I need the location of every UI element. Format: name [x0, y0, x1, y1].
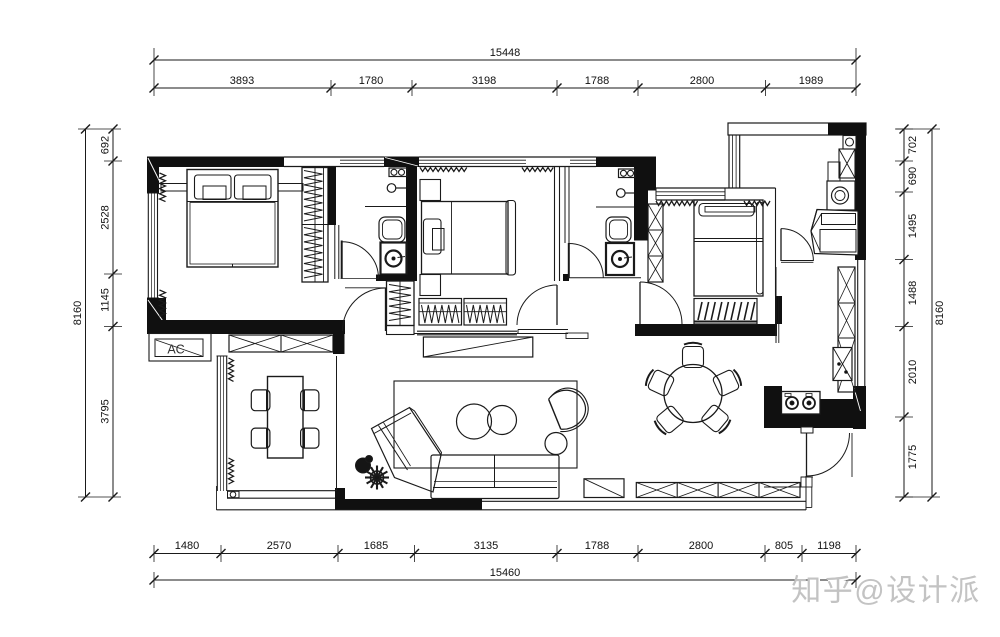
svg-text:15448: 15448: [490, 47, 521, 59]
svg-text:805: 805: [775, 540, 793, 552]
svg-text:8160: 8160: [934, 301, 946, 325]
svg-text:2528: 2528: [100, 205, 112, 229]
svg-text:2800: 2800: [689, 540, 713, 552]
svg-text:15460: 15460: [490, 567, 521, 579]
svg-text:1480: 1480: [175, 540, 199, 552]
svg-text:2010: 2010: [907, 360, 919, 384]
svg-text:AC: AC: [167, 343, 184, 357]
svg-text:1198: 1198: [817, 540, 841, 552]
svg-text:1788: 1788: [585, 75, 609, 87]
svg-text:690: 690: [907, 167, 919, 185]
svg-text:3198: 3198: [472, 75, 496, 87]
svg-text:1488: 1488: [907, 281, 919, 305]
svg-text:1788: 1788: [585, 540, 609, 552]
svg-text:1685: 1685: [364, 540, 388, 552]
svg-text:1989: 1989: [799, 75, 823, 87]
svg-text:1780: 1780: [359, 75, 383, 87]
svg-text:3893: 3893: [230, 75, 254, 87]
svg-text:3795: 3795: [100, 399, 112, 423]
svg-text:8160: 8160: [72, 301, 84, 325]
svg-text:1495: 1495: [907, 214, 919, 238]
svg-text:3135: 3135: [474, 540, 498, 552]
svg-text:692: 692: [100, 136, 112, 154]
svg-text:702: 702: [907, 136, 919, 154]
svg-text:1145: 1145: [100, 288, 112, 312]
svg-text:2570: 2570: [267, 540, 291, 552]
svg-text:1775: 1775: [907, 445, 919, 469]
svg-text:知乎@设计派: 知乎@设计派: [791, 575, 980, 608]
svg-text:2800: 2800: [690, 75, 714, 87]
